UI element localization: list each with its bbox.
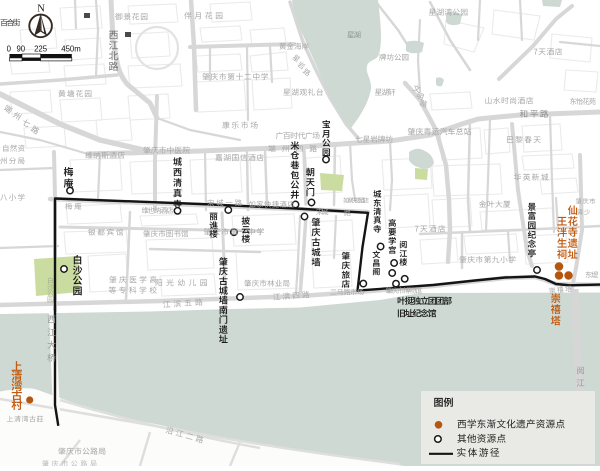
svg-text:自然资: 自然资 xyxy=(2,143,26,154)
svg-text:白沙公园: 白沙公园 xyxy=(47,276,54,305)
svg-text:肇庆市中医院: 肇庆市中医院 xyxy=(143,145,190,156)
svg-text:西江大桥: 西江大桥 xyxy=(47,313,56,364)
svg-text:实体游径: 实体游径 xyxy=(457,445,500,459)
svg-text:维也纳酒店: 维也纳酒店 xyxy=(142,206,174,216)
svg-text:肇庆市公路局: 肇庆市公路局 xyxy=(58,446,106,457)
svg-text:牌坊公园: 牌坊公园 xyxy=(379,52,409,63)
svg-text:叶挺独立团团部: 叶挺独立团团部 xyxy=(397,294,452,307)
svg-text:丽谯楼: 丽谯楼 xyxy=(209,210,218,240)
svg-text:西江北路: 西江北路 xyxy=(109,27,119,74)
svg-text:路: 路 xyxy=(344,209,351,219)
svg-text:肇庆古城墙: 肇庆古城墙 xyxy=(311,214,320,268)
svg-text:御景花园: 御景花园 xyxy=(115,12,148,23)
svg-text:90: 90 xyxy=(16,45,25,54)
svg-text:东堤: 东堤 xyxy=(585,271,599,281)
svg-text:和平路: 和平路 xyxy=(520,108,549,120)
svg-text:肇庆市第十二中学: 肇庆市第十二中学 xyxy=(202,71,269,82)
svg-text:梅庵: 梅庵 xyxy=(64,164,74,191)
svg-text:康乐市场: 康乐市场 xyxy=(222,120,258,131)
svg-text:嘉湖国信酒店: 嘉湖国信酒店 xyxy=(215,153,264,164)
svg-text:米仓巷包公井: 米仓巷包公井 xyxy=(290,138,299,201)
svg-text:青少: 青少 xyxy=(577,207,591,217)
svg-text:黄塘花园: 黄塘花园 xyxy=(58,89,92,100)
svg-text:肇庆市林业局: 肇庆市林业局 xyxy=(244,278,290,289)
svg-text:八小学: 八小学 xyxy=(0,192,26,203)
svg-text:肇庆粤运汽车总站: 肇庆粤运汽车总站 xyxy=(408,127,472,138)
svg-text:白沙公园: 白沙公园 xyxy=(73,252,83,298)
svg-text:肇庆古城墙南门遗址: 肇庆古城墙南门遗址 xyxy=(219,254,228,346)
svg-text:州分局: 州分局 xyxy=(0,155,25,166)
svg-text:其他资源点: 其他资源点 xyxy=(457,431,506,445)
svg-text:上清湾古村: 上清湾古村 xyxy=(11,359,22,413)
svg-text:肇庆旅店: 肇庆旅店 xyxy=(341,250,350,290)
svg-text:城东清真寺: 城东清真寺 xyxy=(373,188,382,235)
svg-text:文昌阁: 文昌阁 xyxy=(372,250,380,278)
svg-text:星湖湾公园: 星湖湾公园 xyxy=(429,7,469,18)
svg-text:王泮生祠: 王泮生祠 xyxy=(557,213,567,261)
svg-text:肇庆市图书馆: 肇庆市图书馆 xyxy=(143,229,189,240)
svg-text:450m: 450m xyxy=(61,45,81,54)
svg-text:维纳斯酒店: 维纳斯酒店 xyxy=(85,150,125,161)
svg-text:高要学宫: 高要学宫 xyxy=(388,217,396,256)
svg-text:图例: 图例 xyxy=(434,394,454,409)
svg-text:等专科学校: 等专科学校 xyxy=(109,285,158,296)
svg-text:朝天门: 朝天门 xyxy=(306,165,315,199)
svg-text:宋城一路: 宋城一路 xyxy=(207,199,243,209)
svg-text:阅江楼: 阅江楼 xyxy=(399,240,407,268)
svg-text:黄金海岸: 黄金海岸 xyxy=(279,41,310,52)
svg-text:肇庆市: 肇庆市 xyxy=(576,195,597,205)
svg-text:225: 225 xyxy=(34,45,48,54)
svg-text:星湖观礼台: 星湖观礼台 xyxy=(283,87,324,98)
svg-text:7天酒店: 7天酒店 xyxy=(534,47,563,58)
svg-text:N: N xyxy=(37,4,45,15)
svg-text:披云楼: 披云楼 xyxy=(241,214,250,245)
svg-text:百合街: 百合街 xyxy=(0,17,21,28)
svg-text:星湖轩: 星湖轩 xyxy=(375,87,396,98)
svg-text:宝月公园: 宝月公园 xyxy=(322,118,331,159)
svg-text:0: 0 xyxy=(7,45,12,54)
svg-text:华英新城: 华英新城 xyxy=(514,172,549,183)
svg-text:金叶大厦: 金叶大厦 xyxy=(479,199,511,210)
svg-text:肇庆市第九小学: 肇庆市第九小学 xyxy=(459,255,516,266)
svg-text:景富园纪念亭: 景富园纪念亭 xyxy=(527,200,536,260)
svg-text:山水时尚酒店: 山水时尚酒店 xyxy=(485,95,534,106)
svg-text:银都宾馆: 银都宾馆 xyxy=(88,227,124,238)
svg-text:如家快捷酒店: 如家快捷酒店 xyxy=(249,200,295,210)
svg-text:星湖: 星湖 xyxy=(347,29,361,40)
svg-text:城西清真寺: 城西清真寺 xyxy=(173,154,182,210)
svg-text:旧址纪念馆: 旧址纪念馆 xyxy=(397,306,437,319)
svg-text:仙花寺遗址: 仙花寺遗址 xyxy=(568,202,579,261)
svg-text:7天酒店: 7天酒店 xyxy=(415,224,446,235)
svg-text:七星岩牌坊: 七星岩牌坊 xyxy=(355,134,393,145)
svg-text:西学东渐文化遗产资源点: 西学东渐文化遗产资源点 xyxy=(457,417,565,431)
svg-text:梅庵: 梅庵 xyxy=(65,202,82,212)
svg-text:上清湾古莊: 上清湾古莊 xyxy=(7,414,44,424)
svg-text:巴黎春天: 巴黎春天 xyxy=(506,135,541,146)
svg-text:东怡花苑: 东怡花苑 xyxy=(570,97,597,107)
svg-text:肇庆医学高: 肇庆医学高 xyxy=(109,275,157,286)
svg-text:如家快捷酒店: 如家快捷酒店 xyxy=(343,196,369,205)
svg-text:崇禧塔: 崇禧塔 xyxy=(551,290,562,328)
